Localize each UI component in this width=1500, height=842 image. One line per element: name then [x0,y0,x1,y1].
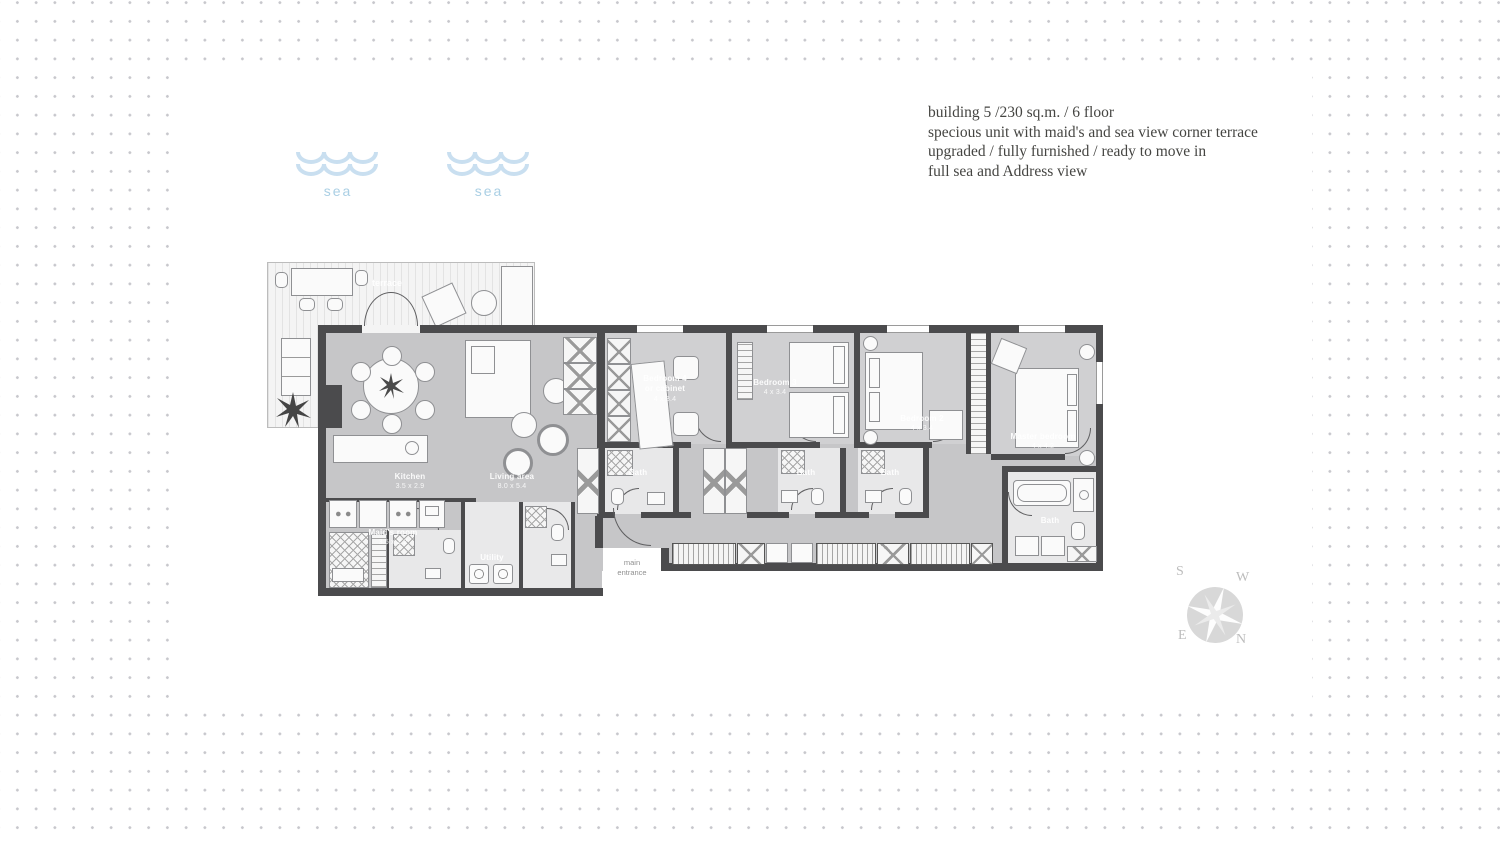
washing-machine [493,564,513,584]
window [1096,362,1103,404]
room-name: Bath [797,468,816,477]
window [887,325,929,333]
table-centerpiece-icon [375,370,407,402]
wall [519,502,523,588]
entrance-line: main [603,558,661,568]
pillow [869,358,880,388]
wall [318,325,602,333]
room-name: Maid's room [369,528,418,537]
listing-description: building 5 /230 sq.m. / 6 floor specious… [928,103,1288,181]
shelf-unit [563,389,597,415]
wall [854,333,860,448]
room-dims: 3.5 x 2.9 [375,482,445,491]
bath-label: Bath [615,468,661,478]
window [637,325,683,333]
toilet [551,524,564,541]
dining-chair [382,414,402,434]
room-dims: 4 x 4.2 [995,442,1091,451]
hall-closet [725,448,747,514]
pouf [511,412,537,438]
wall [923,448,929,514]
room-name: Bedroom 4 [643,374,687,383]
room-name: Bedroom 2 [900,414,944,423]
hall-closet [703,448,725,514]
floor-plan: terrace [267,262,1103,598]
wall [747,512,789,518]
main-entrance-label: main entrance [603,558,661,578]
sink [1015,536,1039,556]
corridor-shelf [737,543,765,565]
toilet [811,488,824,505]
nightstand-lamp [863,336,878,351]
terrace-sofa [501,266,533,326]
shelf-unit [563,337,597,363]
pillow [833,346,845,384]
room-dims: 8.0 x 5.4 [472,482,552,491]
wall [318,325,326,596]
maid-room-label: Maid's room 3.5 x 2.2 [355,528,431,547]
bath-label: Bath [783,468,829,478]
compass-e: E [1178,628,1187,644]
bath-mat [1067,546,1097,562]
wall [986,333,991,454]
nightstand-lamp [863,430,878,445]
room-name: Kitchen [395,472,426,481]
wall [726,333,732,448]
wall [318,588,608,596]
room-dims: 3.5 x 2.2 [355,538,431,547]
bath-label: Bath [867,468,913,478]
utility-label: Utility [465,553,519,563]
description-line: specious unit with maid's and sea view c… [928,123,1288,143]
pillow [1067,374,1077,406]
dining-chair [351,400,371,420]
corridor-wardrobe [672,543,736,565]
description-line: upgraded / fully furnished / ready to mo… [928,142,1288,162]
waves-icon [446,146,532,176]
compass-w: W [1236,570,1249,586]
island-sink [405,441,419,455]
terrace-table [291,268,353,296]
sink [1041,536,1065,556]
wall [571,502,575,588]
sink [647,492,665,505]
bedroom3-label: Bedroom 3 4 x 3.4 [735,378,815,397]
terrace-chair [299,298,315,311]
wall [895,512,929,518]
kitchen-counter [359,500,387,528]
shoe-cabinet [766,543,788,563]
window [1019,325,1065,333]
shoe-cabinet [791,543,813,563]
living-label: Living area 8.0 x 5.4 [472,472,552,491]
dining-chair [415,400,435,420]
corridor-shelf [877,543,909,565]
dining-chair [415,362,435,382]
terrace-door-opening [362,325,420,333]
nightstand-lamp [1079,344,1095,360]
sink [551,554,567,566]
bedroom4-label: Bedroom 4 or cabinet 4 x 3.4 [625,374,705,404]
sea-marker-2: sea [446,146,532,199]
cooktop [329,500,357,528]
master-bedroom-label: Master bedroom 4 x 4.2 [995,432,1091,451]
wall [461,502,465,588]
wall [840,448,846,514]
bath-label: Bath [1022,516,1078,526]
wall [1008,466,1096,472]
wall [661,548,669,571]
sea-marker-1: sea [295,146,381,199]
sofa-cushion [471,346,495,374]
wall [673,448,679,514]
dining-chair [382,346,402,366]
entrance-line: entrance [603,568,661,578]
washing-machine [469,564,489,584]
bathtub-inner [1017,484,1067,502]
room-dims: 4 x 3.4 [735,388,815,397]
description-line: full sea and Address view [928,162,1288,182]
pillow [869,392,880,422]
sink [781,490,798,503]
compass: S W E N [1176,562,1256,662]
window [767,325,813,333]
compass-s: S [1176,564,1184,580]
wall [991,454,1065,460]
nightstand-lamp [1079,450,1095,466]
terrace-bench [281,338,311,396]
wardrobe-unit [607,338,631,364]
room-name: Master bedroom [1010,432,1075,441]
toilet [443,538,455,554]
wall [595,516,603,548]
room-name: Bath [629,468,648,477]
sea-label: sea [446,183,532,199]
toilet [899,488,912,505]
shelf-unit [563,363,597,389]
desk-chair [673,412,699,436]
sink [425,568,441,579]
kitchen-label: Kitchen 3.5 x 2.9 [375,472,445,491]
compass-n: N [1236,632,1246,648]
shower [525,506,547,528]
corridor-wardrobe [816,543,876,565]
corridor-wardrobe [910,543,970,565]
terrace-chair [275,272,288,288]
toilet [611,488,624,505]
room-dims: 4 x 3.4 [625,395,705,404]
description-line: building 5 /230 sq.m. / 6 floor [928,103,1288,123]
wall [1002,466,1008,563]
room-dims: 4 x 3.4 [882,424,962,433]
pillow [332,568,364,582]
sink-basin [425,506,439,516]
room-subname: or cabinet [645,384,685,393]
room-name: Bath [881,468,900,477]
wardrobe-unit [607,416,631,442]
kitchen-counter [389,500,417,528]
linen-closet [577,448,599,514]
waves-icon [295,146,381,176]
room-name: Living area [490,472,534,481]
plant-icon [273,390,313,430]
room-name: Bedroom 3 [753,378,797,387]
floorplan-page: { "info": { "line1": "building 5 /230 sq… [0,0,1500,842]
pillow [833,396,845,434]
terrace-chair [327,298,343,311]
shower-drain [1079,490,1089,500]
room-name: Utility [480,553,504,562]
closet-strip [971,333,986,454]
terrace-label: terrace [347,278,427,288]
armchair [537,424,569,456]
dining-chair [351,362,371,382]
sink [865,490,882,503]
wall-block [318,385,342,428]
sea-label: sea [295,183,381,199]
corridor-shelf [971,543,993,565]
bedroom2-label: Bedroom 2 4 x 3.4 [882,414,962,433]
terrace-round-table [471,290,497,316]
room-name: Bath [1041,516,1060,525]
wall [815,512,869,518]
